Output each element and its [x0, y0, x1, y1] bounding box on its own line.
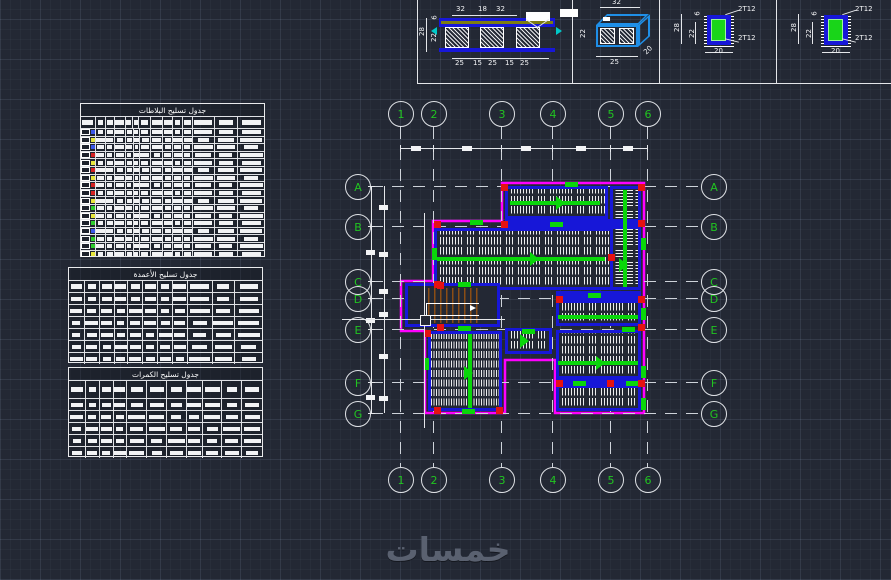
- table-cell: [192, 213, 214, 220]
- table-row: [69, 292, 262, 304]
- cell-text-blob: [190, 297, 209, 301]
- table-cell: [126, 381, 146, 398]
- support-mark: [565, 182, 578, 187]
- table-cell: [157, 317, 172, 328]
- table-cell: [234, 281, 262, 292]
- cell-text-blob: [219, 120, 233, 125]
- table-cell: [113, 435, 127, 446]
- cell-text-blob: [146, 357, 155, 361]
- table-cell: [105, 152, 114, 159]
- grid-bubble-col: 2: [421, 101, 447, 127]
- table-cell: [187, 341, 212, 352]
- grid-bubble-row: B: [345, 214, 371, 240]
- table-cell: [127, 317, 142, 328]
- table-cell: [114, 235, 125, 242]
- dim-text: 28: [674, 23, 681, 32]
- table-cell: [214, 235, 238, 242]
- cell-text-blob: [219, 183, 232, 187]
- table-cell: [99, 353, 114, 364]
- cell-text-blob: [72, 333, 80, 337]
- cell-text-blob: [171, 387, 182, 392]
- table-cell: [182, 243, 192, 250]
- table-cell: [99, 435, 113, 446]
- dim-text: 20: [643, 45, 654, 56]
- table-cell: [186, 435, 202, 446]
- cell-text-blob: [184, 176, 190, 180]
- table-cell: [138, 117, 150, 128]
- table-cell: [95, 182, 105, 189]
- slab-mark-outline: [81, 228, 90, 234]
- cell-text-blob: [116, 214, 124, 218]
- table-cell: [237, 182, 264, 189]
- cell-text-blob: [127, 138, 132, 142]
- cell-text-blob: [217, 145, 235, 149]
- table-cell: [125, 159, 133, 166]
- dim-value-blob: [379, 354, 388, 359]
- cell-text-blob: [96, 244, 104, 248]
- slab-mark-outline: [81, 175, 90, 181]
- dim-text: 28: [419, 27, 426, 36]
- cell-text-blob: [102, 403, 111, 407]
- callout-box: [560, 9, 578, 17]
- cell-text-blob: [96, 229, 105, 233]
- table-row: [81, 250, 264, 258]
- grid-bubble-row: G: [701, 401, 727, 427]
- table-cell: [146, 447, 166, 458]
- table-cell: [182, 205, 192, 212]
- table-cell: [237, 167, 264, 174]
- rebar-arrow-icon: [596, 356, 605, 370]
- slab-mark-outline: [81, 182, 90, 188]
- cell-text-blob: [106, 229, 113, 233]
- dim-tick: [368, 329, 375, 330]
- cell-text-blob: [194, 206, 213, 210]
- slab-mark-outline: [81, 144, 90, 150]
- table-cell: [125, 182, 133, 189]
- cell-text-blob: [216, 333, 231, 337]
- table-cell: [237, 213, 264, 220]
- cell-text-blob: [219, 191, 233, 195]
- table-cell: [162, 220, 172, 227]
- cell-text-blob: [117, 168, 123, 172]
- support-mark: [432, 248, 437, 260]
- table-cell: [113, 423, 127, 434]
- cell-text-blob: [96, 214, 104, 218]
- table-cell: [81, 197, 95, 204]
- cell-text-blob: [107, 120, 113, 125]
- cell-text-blob: [141, 145, 149, 149]
- cell-text-blob: [107, 214, 112, 218]
- schedule-table: جدول تسليح البلاطات: [80, 103, 265, 257]
- cell-text-blob: [245, 387, 259, 392]
- table-cell: [126, 435, 146, 446]
- rebar-bar-v: [623, 190, 627, 287]
- cell-text-blob: [161, 321, 170, 325]
- table-cell: [221, 447, 241, 458]
- grid-bubble-col: 2: [421, 467, 447, 493]
- cell-text-blob: [188, 451, 201, 455]
- dim-tick: [368, 298, 375, 299]
- cell-text-blob: [189, 357, 210, 361]
- cell-text-blob: [193, 333, 206, 337]
- cell-text-blob: [141, 120, 148, 125]
- table-cell: [162, 190, 172, 197]
- table-cell: [142, 281, 157, 292]
- table-cell: [139, 129, 151, 136]
- cell-text-blob: [126, 176, 132, 180]
- grid-bubble-col: 3: [489, 467, 515, 493]
- table-cell: [237, 220, 264, 227]
- hollow-block: [516, 27, 540, 48]
- table-cell: [105, 197, 114, 204]
- cell-text-blob: [126, 206, 132, 210]
- cell-text-blob: [242, 130, 261, 134]
- cell-text-blob: [165, 168, 171, 172]
- dim-text: 22: [431, 33, 438, 42]
- table-cell: [172, 190, 182, 197]
- support-mark: [470, 220, 483, 225]
- table-cell: [95, 175, 105, 182]
- table-cell: [146, 435, 166, 446]
- cell-text-blob: [174, 214, 182, 218]
- table-cell: [81, 159, 95, 166]
- cell-text-blob: [195, 153, 211, 157]
- table-cell: [114, 353, 128, 364]
- table-cell: [114, 213, 125, 220]
- cell-text-blob: [115, 191, 124, 195]
- cell-text-blob: [103, 357, 111, 361]
- table-row: [69, 410, 262, 422]
- table-cell: [214, 152, 238, 159]
- cell-text-blob: [115, 221, 124, 225]
- column-mark: [437, 324, 444, 331]
- cell-text-blob: [142, 199, 149, 203]
- column-mark: [556, 296, 563, 303]
- table-cell: [85, 447, 99, 458]
- dim-text: 6: [812, 11, 819, 15]
- cell-text-blob: [174, 345, 186, 349]
- cell-text-blob: [190, 284, 209, 289]
- cell-text-blob: [107, 221, 113, 225]
- slab-mark-outline: [81, 129, 90, 135]
- cell-text-blob: [146, 345, 154, 349]
- cell-text-blob: [115, 206, 124, 210]
- table-cell: [241, 423, 262, 434]
- slab-mark-outline: [81, 251, 90, 257]
- table-cell: [99, 423, 113, 434]
- cell-text-blob: [98, 221, 103, 225]
- table-cell: [162, 228, 172, 235]
- table-cell: [166, 447, 186, 458]
- table-row: [81, 204, 264, 212]
- table-cell: [125, 197, 133, 204]
- cell-text-blob: [244, 145, 258, 149]
- table-cell: [69, 305, 84, 316]
- cell-text-blob: [101, 439, 112, 443]
- table-cell: [125, 205, 133, 212]
- table-row: [81, 227, 264, 235]
- table-cell: [237, 197, 264, 204]
- slab-mark-outline: [81, 160, 90, 166]
- table-row: [81, 128, 264, 136]
- cell-text-blob: [115, 297, 126, 301]
- cell-text-blob: [173, 199, 182, 203]
- table-cell: [214, 117, 238, 128]
- cell-text-blob: [225, 451, 239, 455]
- cell-text-blob: [194, 191, 212, 195]
- cell-text-blob: [102, 387, 111, 392]
- table-cell: [162, 205, 172, 212]
- table-cell: [172, 175, 182, 182]
- cell-text-blob: [107, 183, 112, 187]
- cell-text-blob: [184, 145, 190, 149]
- table-cell: [114, 317, 128, 328]
- slab-mark-outline: [81, 137, 90, 143]
- cell-text-blob: [174, 206, 181, 210]
- table-cell: [125, 243, 133, 250]
- table-cell: [127, 305, 142, 316]
- cell-text-blob: [134, 130, 138, 134]
- table-cell: [192, 228, 214, 235]
- support-mark: [641, 398, 646, 410]
- table-cell: [139, 175, 151, 182]
- slab-mark-outline: [81, 243, 90, 249]
- dim-tick: [501, 145, 502, 152]
- table-cell: [105, 205, 114, 212]
- table-cell: [214, 144, 238, 151]
- cell-text-blob: [115, 130, 124, 134]
- support-mark: [641, 366, 646, 378]
- dim-tick: [368, 226, 375, 227]
- table-row: [69, 340, 262, 352]
- table-cell: [114, 152, 125, 159]
- table-cell: [187, 281, 212, 292]
- table-cell: [81, 251, 95, 258]
- table-cell: [241, 381, 262, 398]
- dim-bracket: [426, 18, 427, 52]
- table-row: [81, 196, 264, 204]
- table-cell: [182, 117, 192, 128]
- column-mark: [501, 184, 508, 191]
- cell-text-blob: [152, 451, 162, 455]
- table-cell: [214, 228, 238, 235]
- cell-text-blob: [116, 439, 124, 443]
- table-cell: [114, 175, 125, 182]
- watermark-text: خمسات: [383, 530, 513, 569]
- dim-text: 28: [791, 23, 798, 32]
- cell-text-blob: [140, 153, 149, 157]
- cell-text-blob: [151, 439, 162, 443]
- cell-text-blob: [131, 387, 143, 392]
- table-cell: [81, 167, 95, 174]
- dim-value-blob: [379, 312, 388, 317]
- column-mark: [607, 380, 614, 387]
- cell-text-blob: [194, 252, 212, 256]
- cad-canvas[interactable]: 32 18 32 25 15 25 15 25 28 22 6 32 22 25…: [0, 0, 891, 580]
- cell-text-blob: [227, 387, 237, 392]
- table-cell: [214, 182, 238, 189]
- cell-text-blob: [127, 214, 131, 218]
- cell-text-blob: [174, 183, 182, 187]
- table-cell: [125, 137, 133, 144]
- cell-text-blob: [152, 237, 162, 241]
- table-cell: [105, 213, 114, 220]
- cell-text-blob: [86, 427, 98, 431]
- cell-text-blob: [72, 345, 81, 349]
- table-cell: [162, 144, 172, 151]
- cell-text-blob: [115, 237, 124, 241]
- dim-tick: [433, 145, 434, 152]
- cell-text-blob: [128, 415, 145, 419]
- table-cell: [172, 129, 182, 136]
- table-cell: [114, 117, 125, 128]
- table-cell: [234, 341, 262, 352]
- dim-text: 15: [505, 60, 514, 67]
- crosshair-pickbox[interactable]: [420, 315, 431, 326]
- cell-text-blob: [140, 183, 149, 187]
- dim-value-blob: [366, 250, 375, 255]
- table-cell: [113, 447, 127, 458]
- table-cell: [85, 411, 99, 422]
- table-cell: [81, 152, 95, 159]
- cell-text-blob: [165, 237, 171, 241]
- table-cell: [157, 281, 172, 292]
- grid-bubble-col: 6: [635, 101, 661, 127]
- cell-text-blob: [88, 415, 96, 419]
- slab-mark-outline: [81, 213, 90, 219]
- cell-text-blob: [160, 357, 171, 361]
- table-cell: [81, 182, 95, 189]
- cell-text-blob: [219, 221, 233, 225]
- table-cell: [162, 251, 172, 258]
- table-cell: [202, 423, 222, 434]
- table-cell: [69, 447, 85, 458]
- cell-text-blob: [114, 387, 125, 392]
- grid-bubble-col: 5: [598, 101, 624, 127]
- cell-text-blob: [152, 252, 162, 256]
- table-cell: [81, 190, 95, 197]
- table-cell: [150, 213, 162, 220]
- table-cell: [202, 411, 222, 422]
- cell-text-blob: [154, 244, 160, 248]
- cell-text-blob: [188, 427, 200, 431]
- cell-text-blob: [149, 415, 164, 419]
- dim-text: 6: [695, 11, 702, 15]
- cell-text-blob: [150, 403, 164, 407]
- table-cell: [125, 117, 133, 128]
- table-cell: [150, 175, 162, 182]
- table-cell: [113, 399, 127, 410]
- cell-text-blob: [127, 153, 131, 157]
- cell-text-blob: [97, 206, 104, 210]
- cell-text-blob: [219, 244, 232, 248]
- table-row: [81, 219, 264, 227]
- table-cell: [221, 381, 241, 398]
- table-cell: [187, 293, 212, 304]
- column-mark: [638, 220, 645, 227]
- cell-text-blob: [217, 237, 235, 241]
- table-header-row: [69, 280, 262, 292]
- cell-text-blob: [164, 120, 172, 125]
- cell-text-blob: [244, 176, 258, 180]
- dim-value-blob: [576, 146, 586, 151]
- table-cell: [182, 213, 192, 220]
- table-cell: [81, 228, 95, 235]
- table-cell: [166, 435, 186, 446]
- cell-text-blob: [174, 153, 182, 157]
- table-cell: [187, 305, 212, 316]
- table-cell: [125, 190, 133, 197]
- iso-cell: [600, 28, 615, 44]
- cell-text-blob: [97, 145, 104, 149]
- cell-text-blob: [144, 321, 156, 325]
- table-cell: [105, 129, 114, 136]
- table-cell: [114, 129, 125, 136]
- table-cell: [192, 137, 214, 144]
- cell-text-blob: [101, 309, 112, 313]
- table-cell: [192, 243, 214, 250]
- table-cell: [105, 167, 114, 174]
- table-cell: [105, 144, 114, 151]
- column-mark: [424, 330, 431, 337]
- table-cell: [182, 129, 192, 136]
- table-row: [69, 328, 262, 340]
- cell-text-blob: [89, 403, 96, 407]
- cell-text-blob: [85, 321, 98, 325]
- table-cell: [187, 329, 212, 340]
- table-cell: [146, 411, 166, 422]
- table-cell: [69, 435, 85, 446]
- slab-panel: [556, 330, 641, 379]
- cell-text-blob: [127, 191, 132, 195]
- table-row: [69, 422, 262, 434]
- table-cell: [105, 182, 114, 189]
- cell-text-blob: [173, 297, 186, 301]
- table-cell: [192, 205, 214, 212]
- table-cell: [150, 152, 162, 159]
- table-cell: [214, 137, 238, 144]
- cell-text-blob: [227, 403, 237, 407]
- table-cell: [105, 159, 114, 166]
- iso-cell: [619, 28, 634, 44]
- table-cell: [84, 317, 99, 328]
- table-cell: [221, 435, 241, 446]
- table-cell: [187, 317, 212, 328]
- table-cell: [234, 353, 262, 364]
- cell-text-blob: [194, 176, 213, 180]
- cell-text-blob: [141, 237, 149, 241]
- cell-text-blob: [142, 138, 149, 142]
- column-mark: [496, 407, 503, 414]
- cell-text-blob: [107, 206, 112, 210]
- cell-text-blob: [116, 183, 124, 187]
- table-cell: [127, 341, 142, 352]
- dim-tick: [400, 145, 401, 152]
- cell-text-blob: [175, 161, 180, 165]
- table-title: جدول تسليح الأعمدة: [69, 268, 262, 280]
- table-cell: [182, 228, 192, 235]
- cell-text-blob: [101, 415, 111, 419]
- grid-bubble-col: 5: [598, 467, 624, 493]
- table-cell: [237, 243, 264, 250]
- cell-text-blob: [97, 237, 104, 241]
- table-cell: [182, 235, 192, 242]
- dim-bracket: [681, 14, 682, 44]
- beam-band: [505, 219, 641, 229]
- cell-text-blob: [145, 284, 156, 289]
- cell-text-blob: [107, 153, 112, 157]
- cell-text-blob: [240, 244, 263, 248]
